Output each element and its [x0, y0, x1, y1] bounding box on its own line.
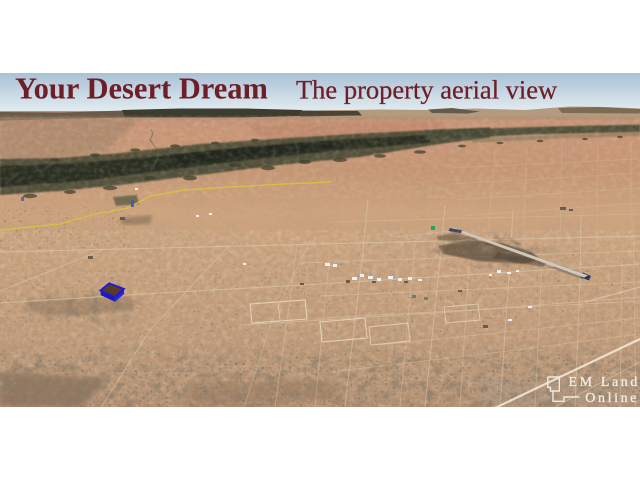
svg-text:EM Land: EM Land: [569, 375, 640, 390]
svg-text:Your Desert Dream: Your Desert Dream: [15, 72, 268, 106]
svg-text:Online: Online: [585, 391, 639, 406]
svg-text:The property aerial view: The property aerial view: [296, 75, 558, 105]
